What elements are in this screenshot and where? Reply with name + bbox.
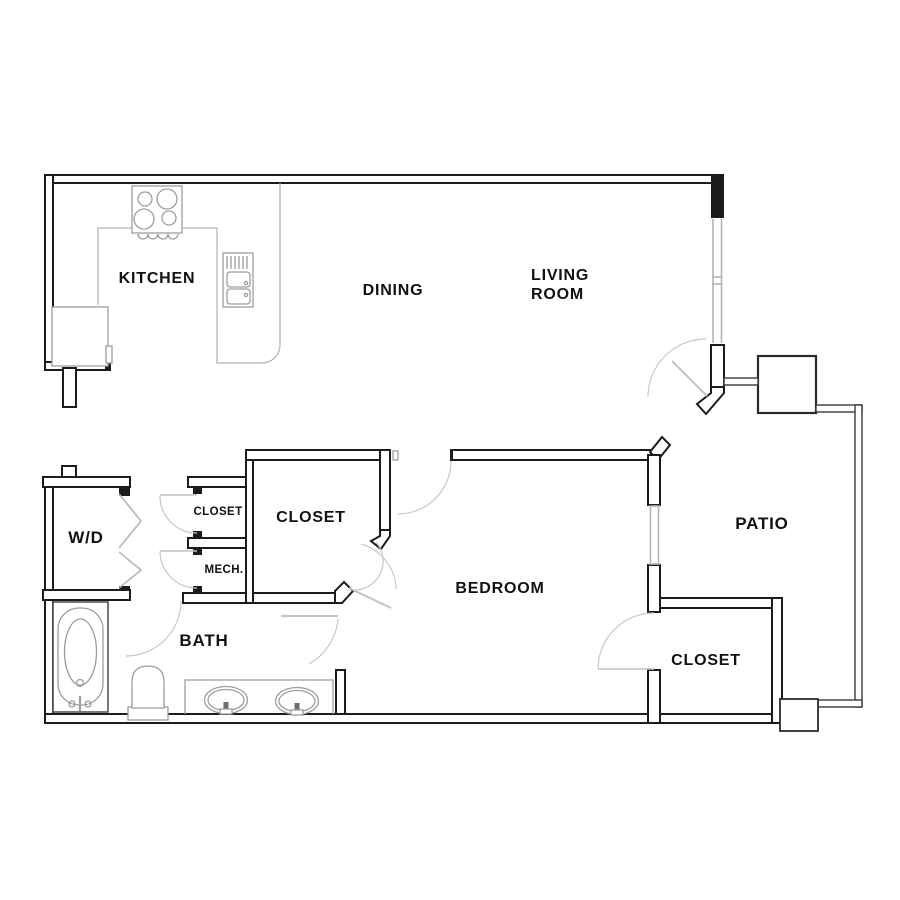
patio-railing-bottom xyxy=(816,700,862,707)
wall-patio-post-upper xyxy=(648,455,660,505)
door-swing-closet-bedroom xyxy=(598,613,654,669)
wall-hall-jamb-angled xyxy=(335,582,353,603)
room-label-wd: W/D xyxy=(68,528,103,547)
jamb-closet-small-top xyxy=(193,487,202,494)
wall-hall-bath xyxy=(183,593,335,603)
patio-storage-box xyxy=(758,356,816,413)
jamb-closet-small-bottom xyxy=(193,531,202,538)
wall-closet-mech-divider xyxy=(188,538,247,548)
room-label-living-line2: ROOM xyxy=(531,286,584,303)
stove xyxy=(132,186,182,239)
room-label-patio: PATIO xyxy=(735,514,788,533)
patio-railing-top-left xyxy=(724,378,758,385)
room-label-mech: MECH. xyxy=(204,564,243,576)
jamb-bedroom-door xyxy=(393,451,398,460)
room-label-living-line1: LIVING xyxy=(531,267,589,284)
kitchen-sink xyxy=(223,253,253,307)
floor-plan-page: KITCHEN DINING LIVING ROOM W/D CLOSET ME… xyxy=(0,0,900,900)
wall-walkin-jamb-angled xyxy=(371,530,390,549)
doors xyxy=(119,339,707,669)
door-leaf-patio xyxy=(672,361,707,396)
room-label-closet-walkin: CLOSET xyxy=(276,509,346,526)
patio-elements xyxy=(724,356,862,731)
floor-plan-drawing: KITCHEN DINING LIVING ROOM W/D CLOSET ME… xyxy=(0,0,900,900)
door-swing-bath-inner xyxy=(309,619,338,664)
wall-bedroom-top xyxy=(452,450,655,460)
bath-fixtures xyxy=(53,602,333,720)
wall-wd-bottom xyxy=(43,590,130,600)
door-swing-mech xyxy=(160,551,197,588)
door-swing-patio xyxy=(648,339,706,397)
bathtub xyxy=(53,602,108,712)
room-label-closet-small: CLOSET xyxy=(193,506,242,518)
wall-closet-bedroom-top xyxy=(660,598,782,608)
wall-wd-top xyxy=(43,477,130,487)
refrigerator xyxy=(52,307,112,366)
room-label-bedroom: BEDROOM xyxy=(455,580,544,597)
exterior-walls xyxy=(45,175,782,723)
patio-railing-right xyxy=(855,405,862,707)
room-label-dining: DINING xyxy=(363,282,424,299)
door-swing-bath-hall xyxy=(126,601,181,656)
wall-walkin-right xyxy=(380,450,390,530)
wall-walkin-top xyxy=(246,450,390,460)
vanity-double-sink xyxy=(185,680,333,715)
room-label-kitchen: KITCHEN xyxy=(119,270,196,287)
door-swing-closet-small xyxy=(160,496,197,533)
jamb-mech-bottom xyxy=(193,586,202,593)
wall-stub-below-kitchen xyxy=(63,368,76,407)
wall-corner-top-right xyxy=(711,175,724,218)
room-label-bath: BATH xyxy=(179,631,228,650)
patio-corner-column xyxy=(780,699,818,731)
room-label-closet-bedroom: CLOSET xyxy=(671,652,741,669)
wall-living-right-post xyxy=(711,345,724,390)
living-room-window xyxy=(712,219,723,343)
wall-closet-bedroom-left xyxy=(648,670,660,723)
bedroom-window xyxy=(649,506,660,564)
door-leaf-bedroom-hall xyxy=(349,588,391,608)
wall-top xyxy=(45,175,723,183)
wall-wd-jamb-top xyxy=(119,487,130,496)
wd-bifold-doors xyxy=(119,494,141,588)
wall-stub-above-wd xyxy=(62,466,76,477)
door-swing-walkin-closet xyxy=(352,542,383,590)
door-swing-bedroom-entry xyxy=(398,461,451,514)
wall-bath-divider xyxy=(336,670,345,714)
door-swing-bedroom-hall xyxy=(361,544,396,589)
wall-walkin-left xyxy=(246,450,253,603)
wall-closet-small-top xyxy=(188,477,247,487)
toilet xyxy=(128,666,168,720)
wall-patio-post-lower xyxy=(648,565,660,612)
